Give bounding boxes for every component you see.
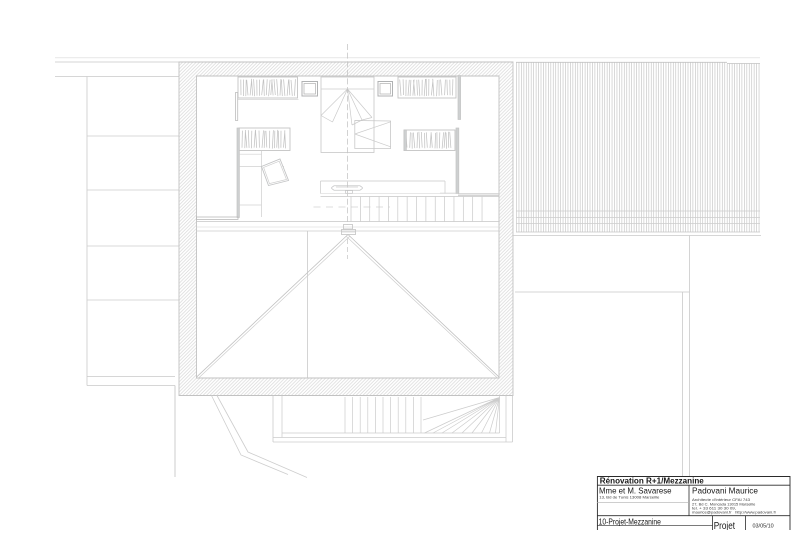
svg-text:13, Bd de Tunis 13008 Marseill: 13, Bd de Tunis 13008 Marseille [599,496,659,500]
svg-text:Rénovation R+1/Mezzanine: Rénovation R+1/Mezzanine [600,477,705,486]
svg-text:Padovani Maurice: Padovani Maurice [692,486,758,496]
svg-text:Projet: Projet [714,521,736,530]
svg-text:maurice@padovani.fr http://w: maurice@padovani.fr http://www.padovani.… [692,510,777,514]
svg-text:03/05/10: 03/05/10 [753,524,774,530]
svg-text:10-Projet-Mezzanine: 10-Projet-Mezzanine [599,516,662,526]
svg-text:Mme et M. Savarese: Mme et M. Savarese [599,486,672,496]
